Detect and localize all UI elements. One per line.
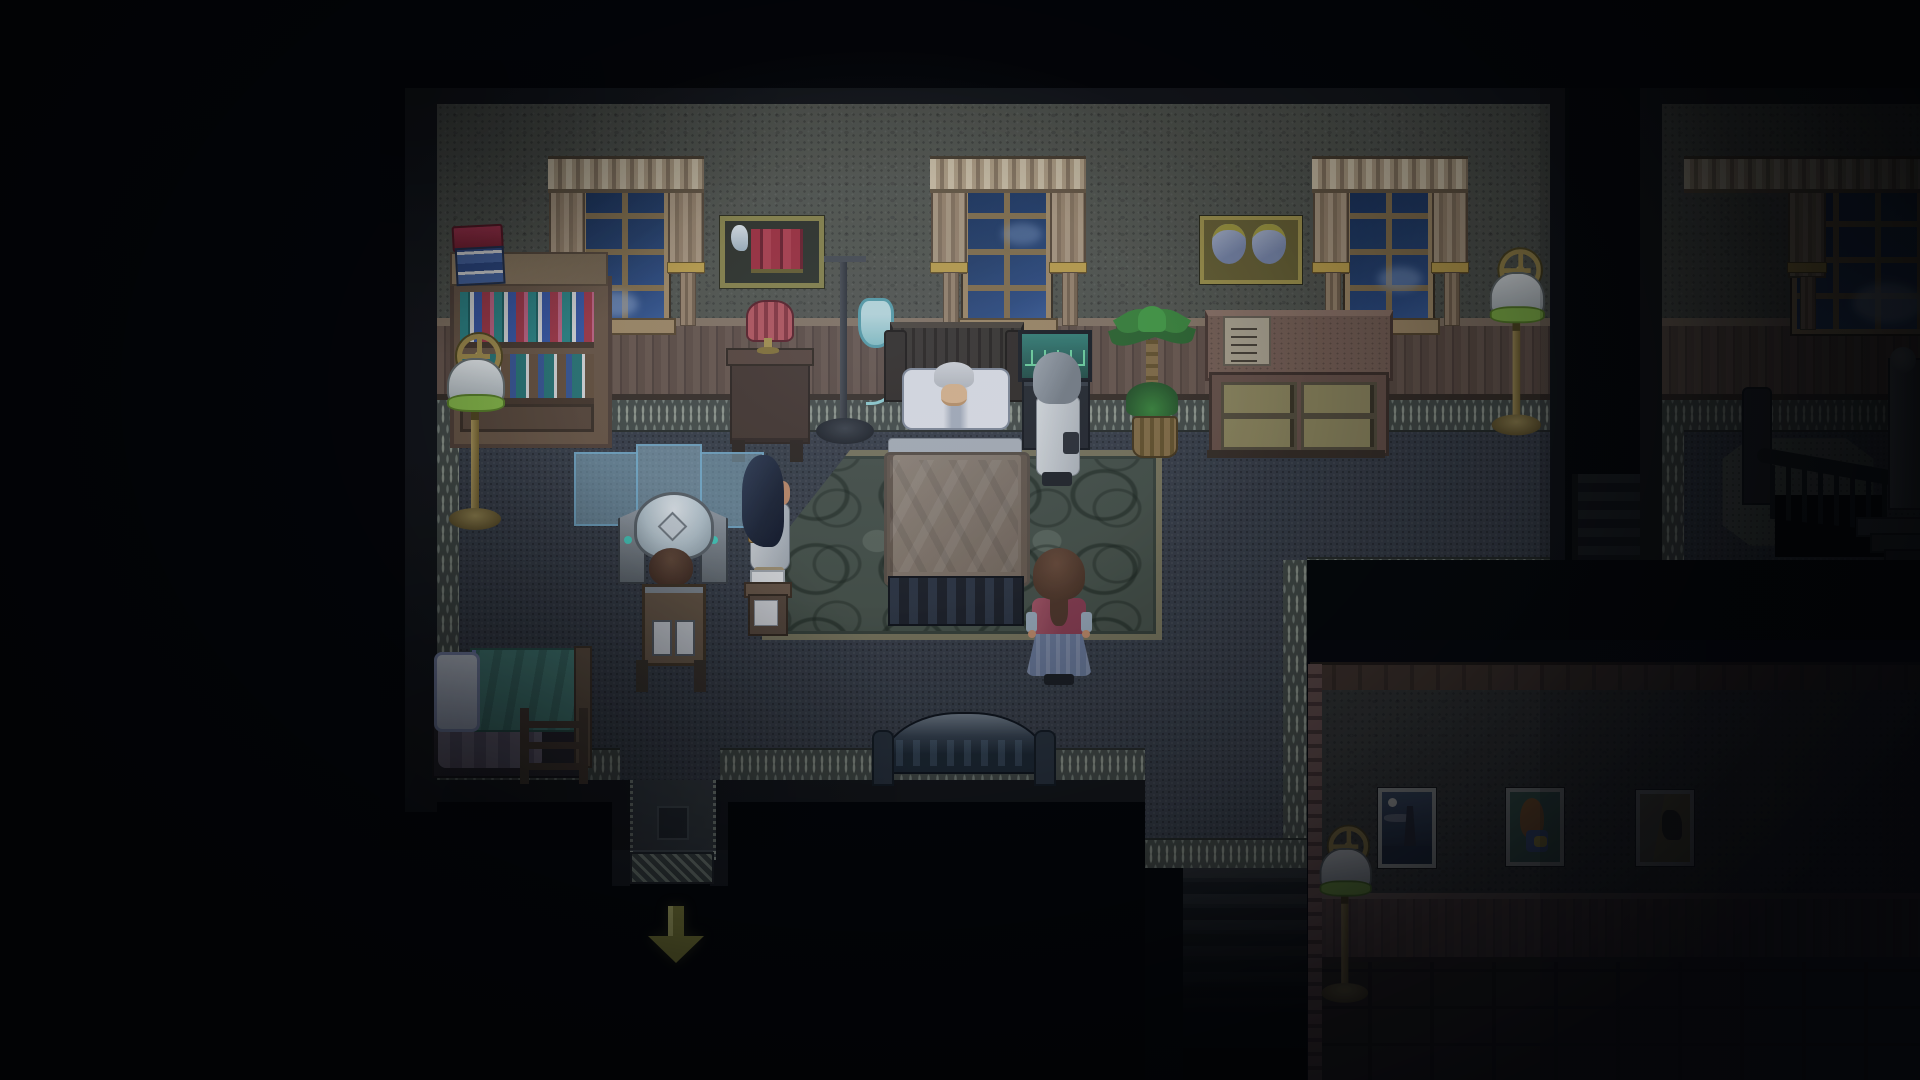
- grey-bob-hair: [1033, 352, 1081, 404]
- corridor-wall-left: [612, 780, 630, 886]
- red-books-row: [751, 229, 803, 273]
- stairwell-side: [1145, 868, 1183, 1080]
- moonlit-cloud: [1853, 283, 1920, 323]
- game-viewport[interactable]: [0, 0, 1920, 1080]
- books-blue: [455, 246, 506, 287]
- palm-plant: [1110, 310, 1194, 458]
- bed-blanket-folds: [890, 460, 1018, 572]
- moonlit-cloud: [1002, 223, 1042, 245]
- book-stack: [452, 224, 507, 285]
- lamp-shade: [447, 358, 505, 408]
- hall-stairs-down[interactable]: [1183, 868, 1307, 1048]
- floor-lamp: [443, 338, 507, 550]
- window-valance: [1312, 156, 1468, 193]
- palm-lower-leaves: [1126, 382, 1178, 416]
- long-dark-hair: [742, 455, 784, 547]
- corridor-doorstep: [657, 806, 689, 840]
- machine-panel: [652, 620, 672, 656]
- exit-arrow[interactable]: [648, 906, 704, 964]
- curtain-left: [1313, 182, 1349, 274]
- lamp-shade: [1490, 272, 1545, 320]
- red-lamp-base: [757, 347, 779, 354]
- lamp-shade: [1320, 848, 1372, 893]
- floor-lamp-hallway: [1316, 830, 1374, 1010]
- window: [1312, 156, 1468, 336]
- corridor-steps-hatch: [630, 852, 714, 884]
- character-caretaker[interactable]: [1030, 352, 1084, 496]
- brown-hair: [1033, 548, 1085, 600]
- white-bird-figurine: [731, 225, 748, 251]
- painting-dark-figure: [1636, 790, 1694, 866]
- sleeve: [1026, 612, 1037, 632]
- blue-jar: [1252, 224, 1286, 264]
- room-frame-right: [1550, 88, 1565, 608]
- painting-moon: [1388, 798, 1397, 807]
- moonlit-cloud: [1378, 267, 1422, 291]
- curtain-left: [1788, 182, 1826, 278]
- window-glass: [1345, 176, 1433, 326]
- floor-border: [1283, 560, 1307, 838]
- wicker-pot: [1132, 416, 1178, 458]
- dresser: [1205, 310, 1387, 458]
- painting-girl: [1506, 788, 1564, 866]
- window-valance: [930, 156, 1086, 193]
- machine-teal-light: [624, 536, 632, 544]
- dresser-base: [1207, 450, 1385, 458]
- character-girl[interactable]: [1026, 546, 1092, 686]
- dresser-drawer: [1221, 416, 1297, 450]
- table-panel: [754, 600, 778, 626]
- landing-frame-top: [1640, 88, 1920, 104]
- hallway-wainscot: [1310, 893, 1920, 962]
- machine-leg: [636, 660, 648, 692]
- arrow-head: [648, 936, 704, 963]
- curtain-right: [1050, 182, 1086, 274]
- room-frame-top: [405, 88, 1565, 104]
- bed-pillow: [434, 652, 480, 732]
- operator-head[interactable]: [649, 548, 693, 586]
- patient-face: [941, 384, 967, 406]
- wall-shelf-red-books: [720, 216, 824, 288]
- curtain-right: [1432, 182, 1468, 274]
- couch-slats: [896, 740, 1030, 766]
- character-woman-white-dress[interactable]: [740, 455, 800, 585]
- dark-bag: [1063, 432, 1079, 454]
- newel-post-grey: [1888, 358, 1920, 510]
- newel-post-dark: [1742, 387, 1772, 505]
- arrow-shaft: [668, 906, 684, 938]
- red-table-lamp: [746, 300, 790, 354]
- machine-leg: [694, 660, 706, 692]
- painting-lighthouse: [1378, 788, 1436, 868]
- single-bed: [432, 646, 592, 786]
- iv-base: [816, 418, 874, 444]
- couch-arm: [1034, 730, 1056, 786]
- painting-figure: [1662, 810, 1682, 840]
- curtain-left: [931, 182, 967, 274]
- iv-pole: [840, 260, 847, 428]
- window-valance: [1684, 156, 1920, 193]
- bed-footer: [888, 576, 1024, 626]
- painting-yellow-item: [1534, 836, 1547, 847]
- patient-head[interactable]: [934, 362, 974, 414]
- spiral-staircase[interactable]: [1738, 355, 1920, 567]
- shoes: [1042, 472, 1072, 486]
- hand: [1082, 630, 1090, 638]
- couch-arm: [872, 730, 894, 786]
- hallway-lower-wall: [1310, 962, 1920, 1080]
- corridor-passage[interactable]: [630, 780, 716, 860]
- feet: [1044, 674, 1074, 685]
- sleeve: [1081, 612, 1092, 632]
- step-ladder: [520, 708, 588, 784]
- palm-frond: [1138, 306, 1166, 332]
- hand: [1028, 630, 1036, 638]
- blue-skirt: [1026, 630, 1092, 676]
- curtain-right: [668, 182, 704, 274]
- iv-crossbar: [824, 256, 866, 262]
- floor-border: [1662, 430, 1684, 560]
- landing-frame-left: [1640, 88, 1662, 566]
- couch: [872, 712, 1054, 790]
- landing-window: [1684, 156, 1920, 342]
- machine-panel: [675, 620, 695, 656]
- memory-machine[interactable]: [618, 492, 724, 698]
- dresser-drawer: [1301, 416, 1377, 450]
- floor-border: [1145, 838, 1307, 870]
- blue-jar: [1212, 224, 1246, 264]
- window-valance: [548, 156, 704, 193]
- wall-shelf-jars: [1200, 216, 1302, 284]
- painting-sea: [1382, 846, 1432, 864]
- nightstand-body: [730, 360, 810, 444]
- red-lamp-shade: [746, 300, 794, 342]
- dresser-drawer: [1221, 382, 1297, 416]
- side-table: [744, 574, 788, 642]
- dresser-note: [1223, 316, 1271, 366]
- floor-lamp: [1486, 253, 1547, 443]
- painting-lighthouse-tower: [1404, 806, 1416, 846]
- hallway-top-void: [1307, 560, 1920, 664]
- window-glass: [963, 176, 1051, 326]
- newel-cap: [1890, 347, 1916, 373]
- dresser-drawer: [1301, 382, 1377, 416]
- window: [930, 156, 1086, 336]
- sickbed[interactable]: [884, 320, 1024, 622]
